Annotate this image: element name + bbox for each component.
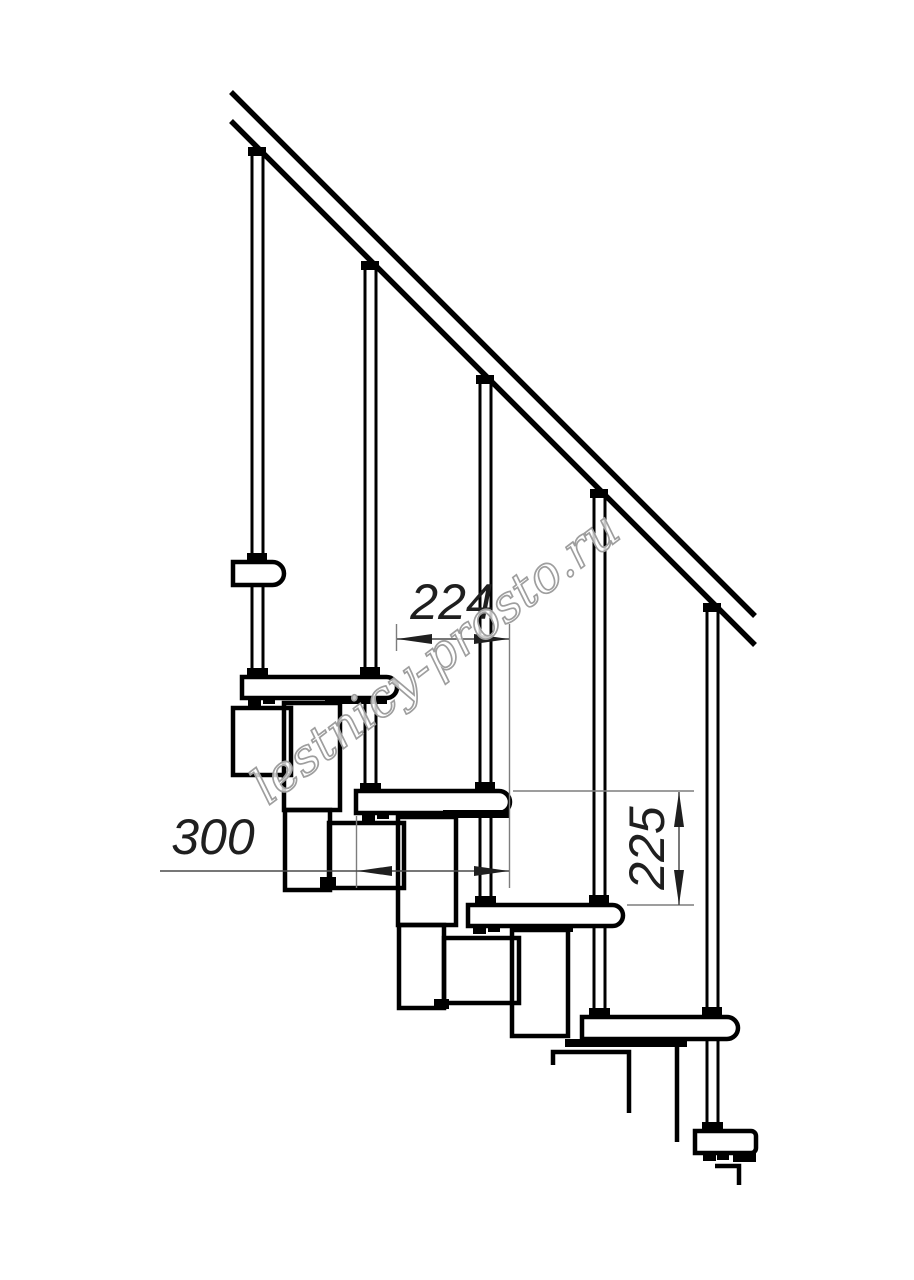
arrowhead-up bbox=[674, 792, 684, 827]
post-foot bbox=[702, 1122, 723, 1131]
fittings bbox=[247, 147, 756, 1162]
tread-0-partial bbox=[233, 562, 284, 585]
tread-5-partial bbox=[695, 1131, 756, 1153]
post-foot bbox=[360, 783, 381, 792]
post-collar bbox=[589, 895, 609, 905]
module-box-cut bbox=[715, 1166, 739, 1185]
watermark-text: lestnicy-prosto.ru bbox=[240, 500, 630, 816]
arrowhead-left bbox=[357, 866, 392, 876]
post-collar bbox=[247, 553, 267, 563]
tread-gasket bbox=[443, 810, 509, 818]
tread-gasket bbox=[512, 924, 573, 932]
module-column bbox=[399, 925, 444, 1008]
module-foot-step bbox=[320, 877, 336, 888]
post-collar bbox=[475, 782, 495, 792]
tread-bolt bbox=[473, 925, 486, 934]
tread-2 bbox=[356, 791, 510, 813]
module-foot-step bbox=[434, 999, 449, 1009]
technical-drawing-page: 224 300 225 lestnicy-prosto.ru bbox=[0, 0, 914, 1280]
handrail-lines bbox=[231, 92, 755, 645]
tread-bolt bbox=[703, 1152, 716, 1161]
post-foot bbox=[589, 1008, 610, 1017]
tread-bolt bbox=[488, 925, 500, 932]
tread-bolt bbox=[263, 697, 275, 704]
module-box bbox=[329, 823, 404, 888]
tread-bolt bbox=[362, 812, 375, 821]
post-foot bbox=[247, 668, 268, 677]
module-box-cut bbox=[553, 1052, 629, 1113]
tread-bolt bbox=[717, 1152, 729, 1160]
tread-bolt bbox=[377, 812, 389, 819]
post-collar bbox=[702, 1007, 722, 1017]
arrowhead-down bbox=[674, 870, 684, 905]
module-box bbox=[444, 938, 519, 1003]
baluster-1 bbox=[252, 151, 263, 677]
post-foot bbox=[475, 896, 496, 905]
tread-3 bbox=[468, 905, 623, 926]
tread-gasket bbox=[733, 1153, 756, 1162]
tread-gasket bbox=[565, 1039, 687, 1047]
baluster-5 bbox=[707, 607, 718, 1131]
dimension-label-rise: 225 bbox=[619, 806, 675, 891]
tread-4 bbox=[582, 1017, 738, 1039]
dimension-label-tread-depth: 300 bbox=[171, 809, 255, 865]
tread-bolt bbox=[248, 697, 261, 706]
staircase-side-view-drawing: 224 300 225 lestnicy-prosto.ru bbox=[0, 0, 914, 1280]
handrail bbox=[231, 92, 755, 645]
